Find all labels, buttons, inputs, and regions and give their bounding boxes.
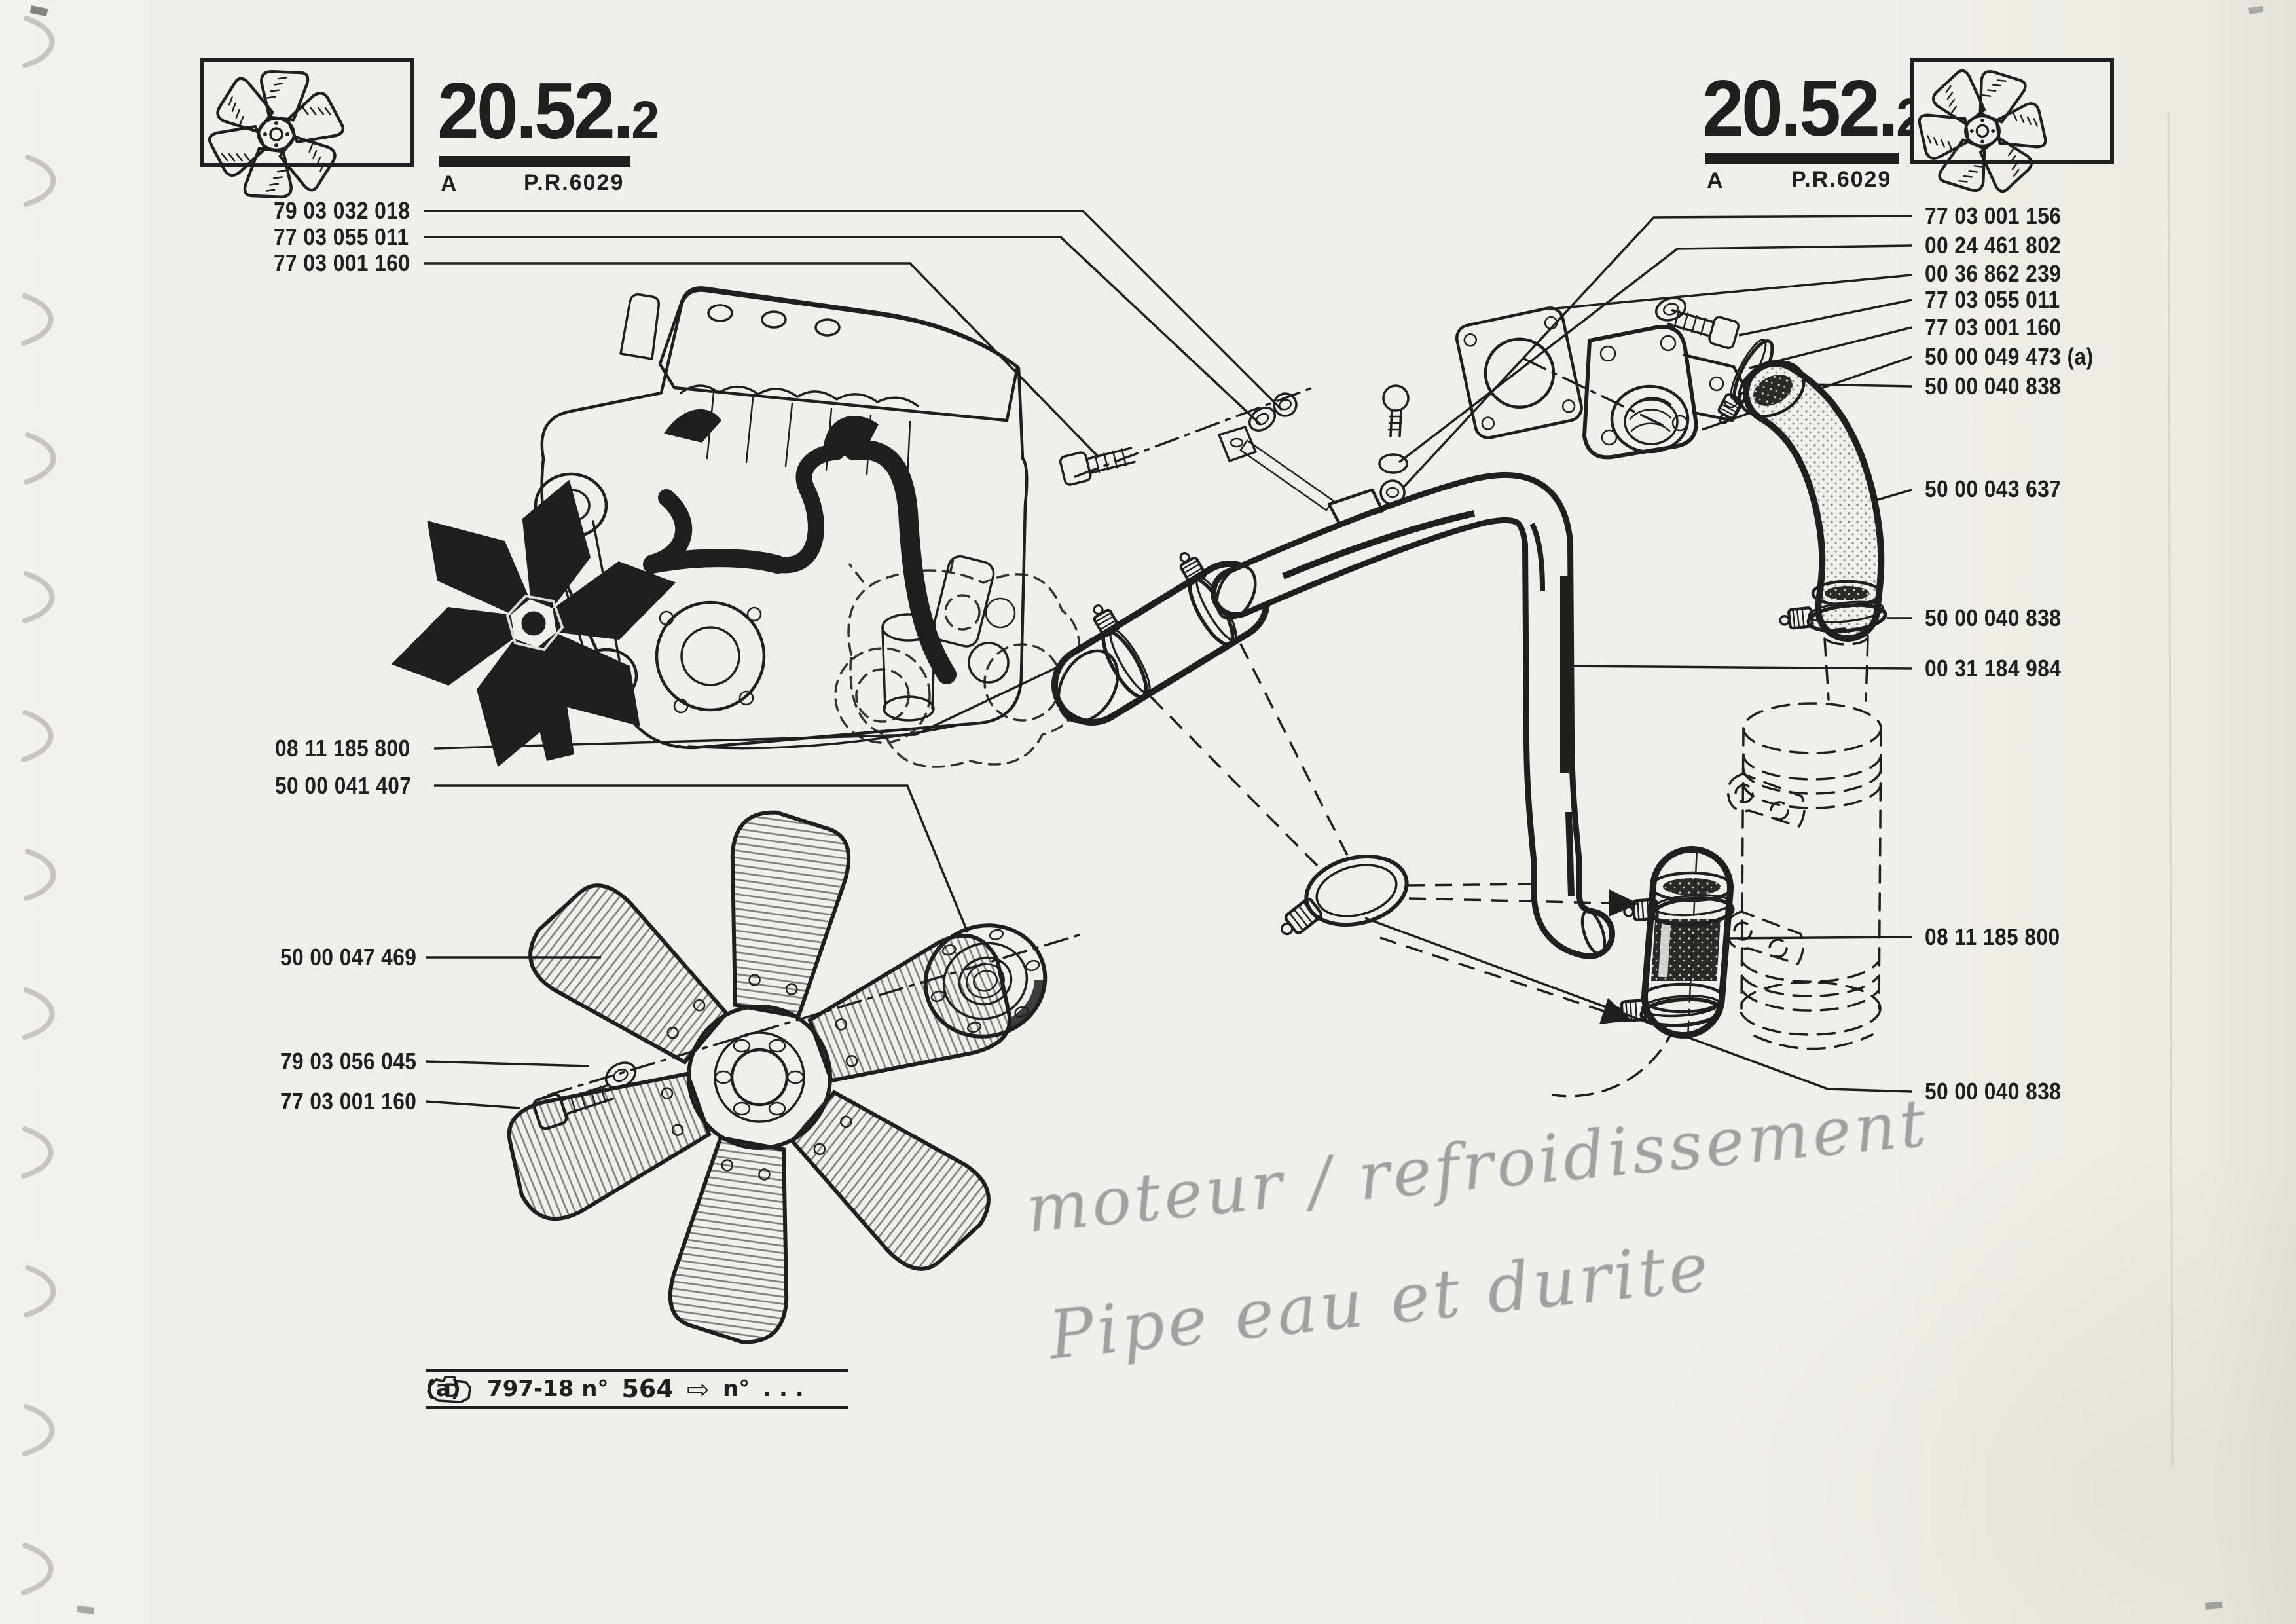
part-label: 77 03 001 160 [274, 249, 410, 277]
part-label: 50 00 040 838 [1925, 1078, 2061, 1105]
gasket [1454, 306, 1584, 440]
part-label: 50 00 040 838 [1925, 373, 2061, 400]
part-label: 77 03 001 160 [280, 1088, 416, 1115]
part-label: 77 03 001 156 [1925, 202, 2061, 230]
svg-text:D: D [445, 1380, 460, 1401]
footnote-number: 564 [621, 1375, 673, 1403]
fan-icon-box-left [200, 58, 414, 167]
section-code: 20.52.2 [1702, 68, 1922, 148]
part-label: 08 11 185 800 [1925, 923, 2060, 951]
header-rule [439, 156, 630, 167]
fan-icon [204, 62, 348, 206]
part-label: 79 03 056 045 [280, 1048, 416, 1075]
revision-letter: A [441, 172, 458, 197]
footnote-code: 797-18 n° [487, 1376, 608, 1402]
bolt-vertical [1379, 386, 1408, 504]
water-pump-ghost [835, 549, 1080, 767]
footnote-ellipsis: . . . [763, 1376, 803, 1402]
binding-holes [24, 18, 54, 1593]
right-arrow-icon: ⇨ [687, 1373, 710, 1405]
part-label: 00 36 862 239 [1925, 260, 2061, 287]
pr-reference: P.R.6029 [524, 170, 624, 196]
part-label: 50 00 040 838 [1925, 604, 2061, 632]
part-label: 08 11 185 800 [275, 735, 410, 762]
part-label: 50 00 047 469 [280, 944, 416, 971]
hose-with-clamps [1046, 548, 1243, 732]
bolt-horizontal [1059, 440, 1136, 485]
pr-reference: P.R.6029 [1791, 167, 1891, 193]
catalog-page: 20.52.2 A P.R.6029 20.52.2 A P.R.6029 79… [0, 0, 2296, 1624]
fan-icon-box-right [1910, 58, 2114, 164]
part-label: 77 03 001 160 [1925, 314, 2061, 341]
footnote-suffix: n° [723, 1376, 750, 1402]
section-code-main: 20.52. [437, 66, 631, 155]
connector-hose [1612, 849, 1734, 1039]
part-label: 77 03 055 011 [1925, 286, 2060, 314]
fan-icon [1914, 62, 2051, 200]
part-label: 50 00 049 473 (a) [1925, 343, 2094, 371]
part-label: 50 00 043 637 [1925, 475, 2061, 503]
fan-assembly [492, 807, 1079, 1348]
section-code: 20.52.2 [437, 71, 657, 151]
footnote-box: (a) D 797-18 n° 564 ⇨ n° . . . [426, 1369, 848, 1409]
section-code-main: 20.52. [1702, 64, 1896, 153]
flange-group [1454, 294, 1779, 457]
revision-letter: A [1707, 168, 1724, 194]
header-rule [1705, 153, 1899, 164]
bolt [1667, 304, 1740, 349]
section-code-sub: 2 [631, 90, 657, 150]
part-label: 50 00 041 407 [275, 772, 411, 800]
part-label: 79 03 032 018 [274, 197, 410, 225]
curved-hose [1730, 351, 1886, 637]
part-label: 00 31 184 984 [1925, 655, 2061, 682]
part-label: 77 03 055 011 [274, 223, 409, 251]
part-label: 00 24 461 802 [1925, 232, 2061, 259]
